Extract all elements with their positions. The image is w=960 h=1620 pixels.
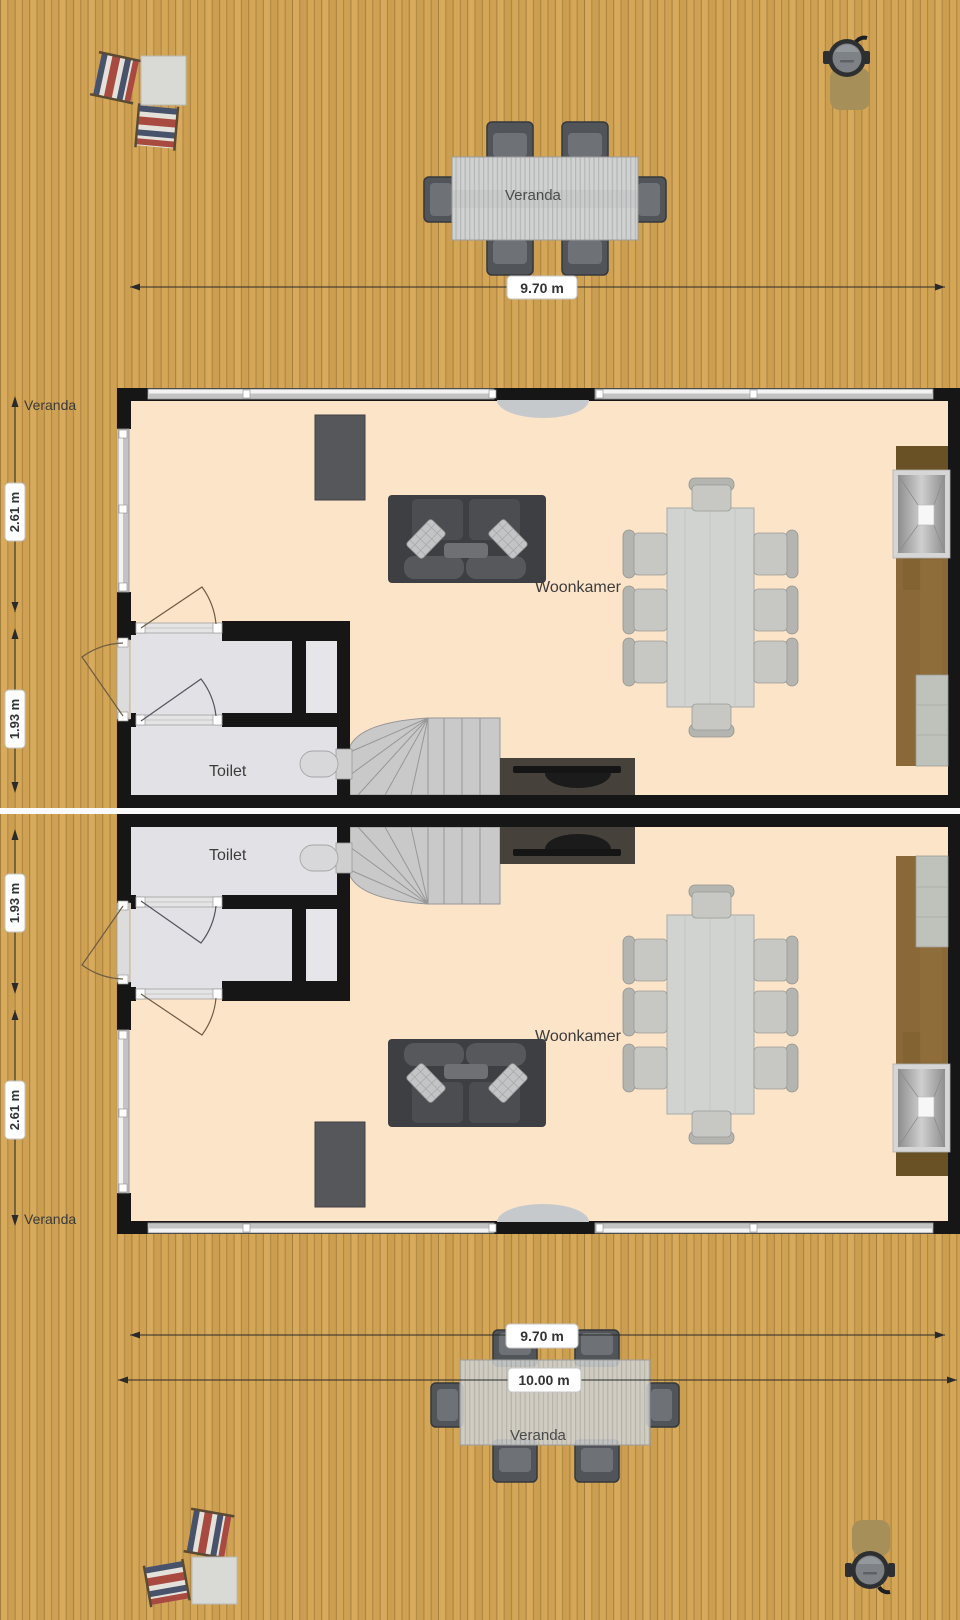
svg-text:Veranda: Veranda [505, 187, 562, 204]
svg-text:Veranda: Veranda [24, 1211, 76, 1227]
svg-text:Toilet: Toilet [209, 763, 247, 780]
svg-text:2.61 m: 2.61 m [7, 1090, 22, 1130]
svg-text:Veranda: Veranda [24, 397, 76, 413]
svg-text:2.61 m: 2.61 m [7, 492, 22, 532]
svg-text:Woonkamer: Woonkamer [535, 1028, 622, 1045]
svg-text:10.00 m: 10.00 m [518, 1372, 569, 1388]
svg-text:9.70 m: 9.70 m [520, 1328, 564, 1344]
svg-text:1.93 m: 1.93 m [7, 699, 22, 739]
svg-text:Woonkamer: Woonkamer [535, 579, 622, 596]
svg-text:1.93 m: 1.93 m [7, 883, 22, 923]
svg-text:Veranda: Veranda [510, 1427, 567, 1444]
svg-text:Toilet: Toilet [209, 847, 247, 864]
svg-text:9.70 m: 9.70 m [520, 280, 564, 296]
